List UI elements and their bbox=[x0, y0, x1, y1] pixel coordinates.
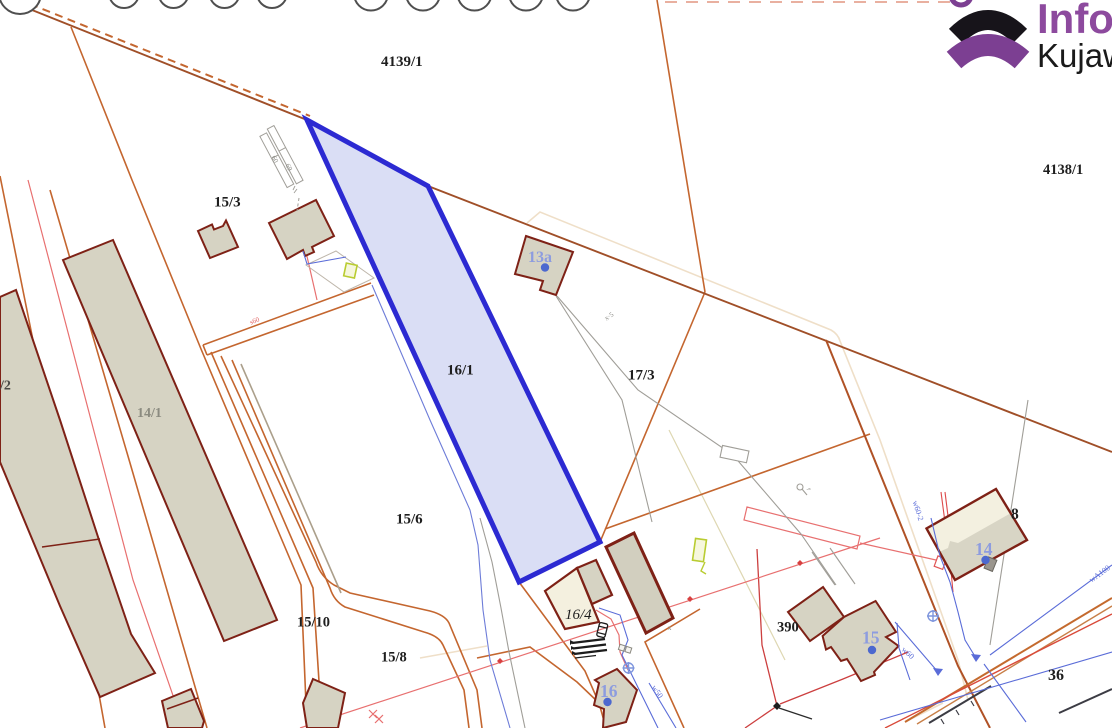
svg-text:15: 15 bbox=[862, 628, 880, 648]
svg-text:Kujaw: Kujaw bbox=[1037, 37, 1112, 74]
svg-text:17/3: 17/3 bbox=[628, 368, 655, 384]
svg-text:16: 16 bbox=[600, 681, 618, 701]
svg-text:Info: Info bbox=[1037, 0, 1112, 42]
svg-text:36: 36 bbox=[1048, 667, 1064, 684]
svg-text:4139/1: 4139/1 bbox=[381, 54, 423, 70]
svg-text:13a: 13a bbox=[528, 249, 552, 266]
svg-text:4138/1: 4138/1 bbox=[1043, 162, 1083, 178]
svg-text:15/3: 15/3 bbox=[214, 195, 241, 211]
svg-text:15/10: 15/10 bbox=[297, 615, 330, 631]
svg-text:1/2: 1/2 bbox=[0, 379, 11, 394]
svg-text:15/6: 15/6 bbox=[396, 512, 423, 528]
svg-text:·ⁿ: ·ⁿ bbox=[806, 486, 811, 494]
svg-text:16/4: 16/4 bbox=[565, 607, 592, 623]
svg-text:x: x bbox=[668, 624, 672, 632]
svg-text:14/1: 14/1 bbox=[137, 406, 162, 421]
svg-text:15/8: 15/8 bbox=[381, 650, 407, 666]
svg-text:390: 390 bbox=[777, 620, 799, 636]
svg-text:14: 14 bbox=[975, 539, 993, 559]
svg-text:16/1: 16/1 bbox=[447, 363, 474, 379]
svg-text:8: 8 bbox=[1011, 506, 1019, 523]
